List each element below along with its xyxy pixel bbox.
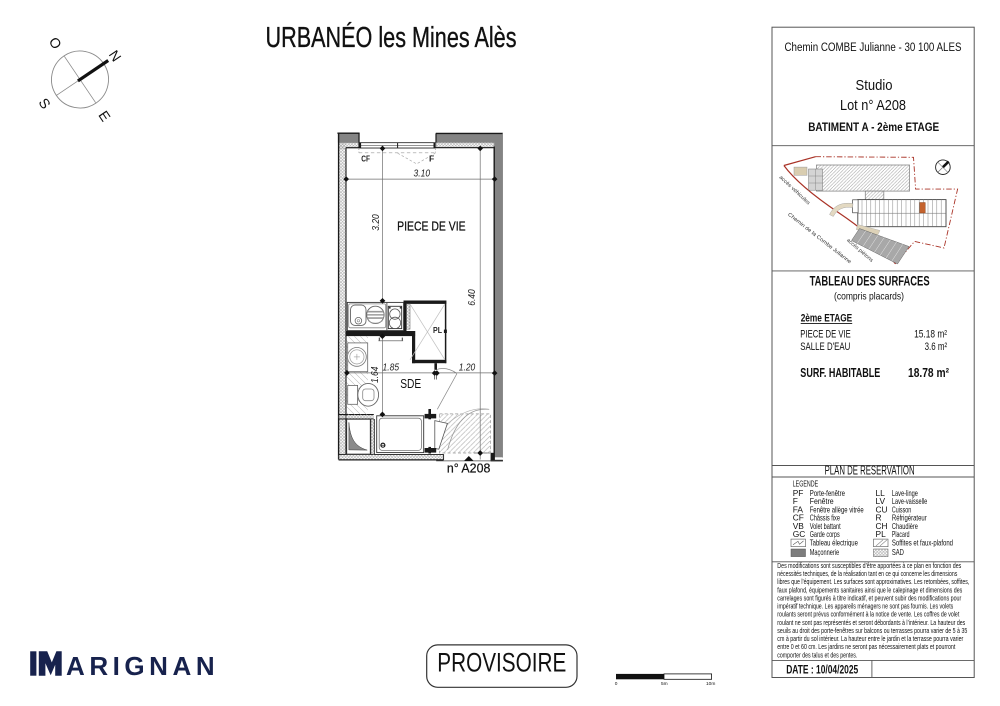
svg-text:1.64: 1.64 <box>370 366 381 383</box>
svg-text:O: O <box>46 34 65 52</box>
svg-text:10m: 10m <box>706 681 715 687</box>
svg-text:1.20: 1.20 <box>459 363 476 374</box>
svg-text:Chemin de la Combe Julianne: Chemin de la Combe Julianne <box>786 212 852 265</box>
svg-text:(compris placards): (compris placards) <box>834 291 904 303</box>
svg-text:Tableau électrique: Tableau électrique <box>810 537 858 547</box>
svg-text:accès véhicules: accès véhicules <box>778 175 812 207</box>
svg-text:n° A208: n° A208 <box>447 461 491 476</box>
svg-text:3.20: 3.20 <box>371 214 382 231</box>
svg-text:Chemin COMBE Julianne - 30 100: Chemin COMBE Julianne - 30 100 ALES <box>785 42 962 54</box>
svg-text:TABLEAU DES SURFACES: TABLEAU DES SURFACES <box>810 274 930 289</box>
svg-text:PL: PL <box>876 529 887 539</box>
svg-text:PROVISOIRE: PROVISOIRE <box>437 648 566 678</box>
svg-text:F: F <box>429 153 434 163</box>
svg-text:comporter des talus et des pen: comporter des talus et des pentes. <box>777 650 857 659</box>
svg-text:SALLE D'EAU: SALLE D'EAU <box>800 341 850 353</box>
svg-text:Lot n° A208: Lot n° A208 <box>840 97 906 114</box>
svg-text:1.85: 1.85 <box>383 363 400 374</box>
svg-text:5m: 5m <box>661 681 668 687</box>
svg-text:E: E <box>95 108 113 125</box>
svg-text:Soffites et faux-plafond: Soffites et faux-plafond <box>892 537 953 547</box>
svg-text:15.18 m²: 15.18 m² <box>914 329 947 341</box>
svg-text:DATE : 10/04/2025: DATE : 10/04/2025 <box>786 663 858 677</box>
svg-text:PIECE DE VIE: PIECE DE VIE <box>397 218 466 233</box>
svg-text:SURF. HABITABLE: SURF. HABITABLE <box>800 366 880 380</box>
svg-text:18.78 m²: 18.78 m² <box>908 366 949 380</box>
svg-text:PLAN DE RESERVATION: PLAN DE RESERVATION <box>825 464 915 478</box>
svg-text:ARIGNAN: ARIGNAN <box>66 651 218 681</box>
svg-text:PL: PL <box>433 326 442 335</box>
svg-text:2ème ETAGE: 2ème ETAGE <box>801 313 853 325</box>
svg-text:3.10: 3.10 <box>414 169 431 180</box>
svg-text:Maçonnerie: Maçonnerie <box>810 547 840 557</box>
svg-text:URBANÉO les Mines Alès: URBANÉO les Mines Alès <box>266 21 517 54</box>
svg-text:SDE: SDE <box>400 377 421 391</box>
svg-text:6.40: 6.40 <box>467 289 478 306</box>
svg-text:BATIMENT A - 2ème ETAGE: BATIMENT A - 2ème ETAGE <box>808 122 939 134</box>
svg-text:GC: GC <box>793 529 806 539</box>
svg-text:3.6 m²: 3.6 m² <box>925 341 948 353</box>
svg-text:SAD: SAD <box>892 547 904 557</box>
svg-text:0: 0 <box>615 681 618 687</box>
svg-text:Studio: Studio <box>856 77 893 94</box>
svg-text:CF: CF <box>361 153 370 163</box>
svg-text:PIECE DE VIE: PIECE DE VIE <box>800 329 851 341</box>
svg-text:S: S <box>36 95 54 112</box>
